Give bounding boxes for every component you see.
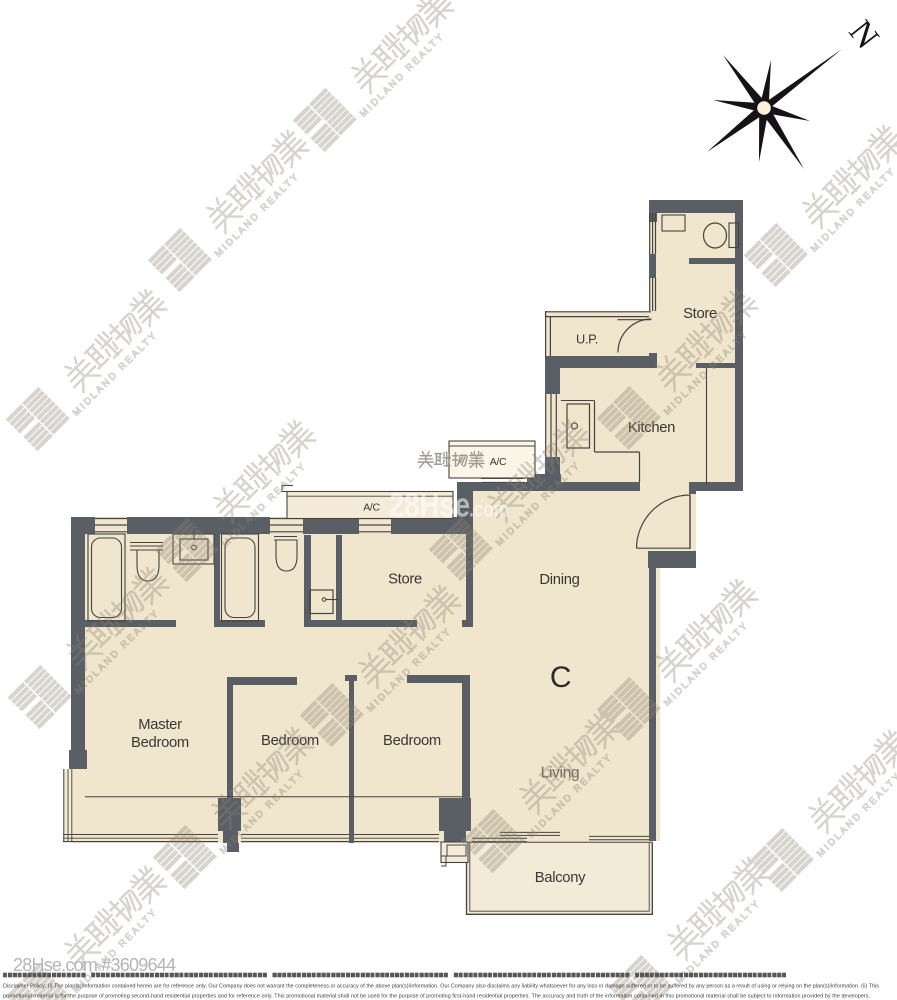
svg-text:Balcony: Balcony — [535, 870, 586, 886]
svg-text:Dining: Dining — [539, 572, 579, 588]
svg-text:A/C: A/C — [363, 502, 380, 514]
svg-text:A/C: A/C — [490, 456, 507, 468]
svg-text:C: C — [550, 661, 571, 694]
svg-text:28Hse: 28Hse — [389, 487, 470, 525]
svg-text:28Hse.com #3609644: 28Hse.com #3609644 — [13, 955, 176, 975]
svg-text:Disclaimer Policy: (i) The pla: Disclaimer Policy: (i) The plan(s)/infor… — [3, 984, 879, 990]
svg-text:U.P.: U.P. — [576, 332, 598, 347]
svg-text:Master: Master — [138, 717, 182, 733]
svg-text:Bedroom: Bedroom — [131, 735, 189, 751]
svg-text:Store: Store — [388, 572, 422, 588]
svg-text:promotional material is for th: promotional material is for the purpose … — [3, 994, 870, 1000]
svg-text:.com: .com — [469, 497, 509, 522]
svg-text:Bedroom: Bedroom — [383, 733, 441, 749]
